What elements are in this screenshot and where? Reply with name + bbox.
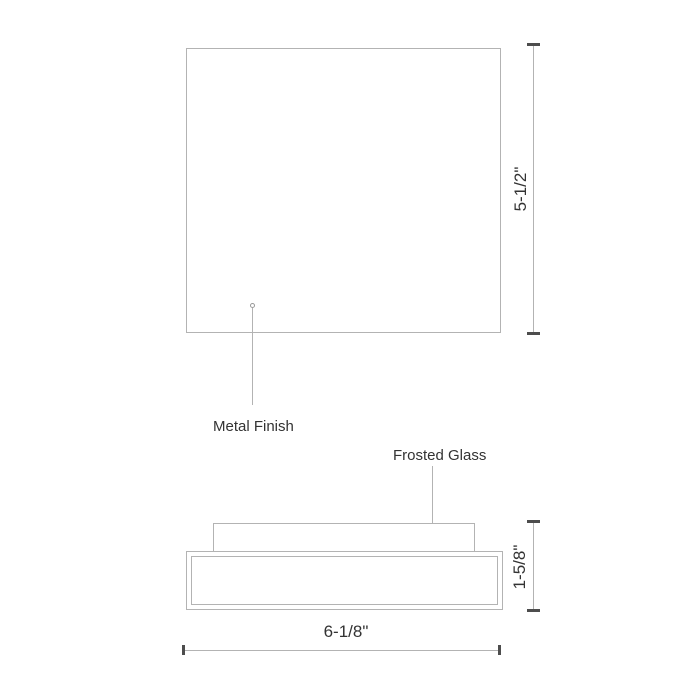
side-view-glass-outline <box>191 556 498 605</box>
width-dimension-line <box>184 650 500 651</box>
plan-height-dimension-line <box>533 44 534 334</box>
side-height-dimension-top-tick <box>527 520 540 523</box>
width-dimension-left-tick <box>182 645 185 655</box>
frosted-glass-label: Frosted Glass <box>393 448 486 464</box>
metal-finish-label: Metal Finish <box>213 419 294 435</box>
plan-height-dimension-top-tick <box>527 43 540 46</box>
side-height-dimension-bottom-tick <box>527 609 540 612</box>
side-height-dimension-label: 1-5/8" <box>511 532 529 602</box>
width-dimension-right-tick <box>498 645 501 655</box>
plan-height-dimension-label: 5-1/2" <box>512 154 530 224</box>
side-height-dimension-line <box>533 522 534 611</box>
plan-view-outline <box>186 48 501 333</box>
side-view-canopy-outline <box>213 523 475 552</box>
plan-height-dimension-bottom-tick <box>527 332 540 335</box>
fixture-dimension-drawing: 5-1/2" Metal Finish Frosted Glass 1-5/8"… <box>0 0 700 700</box>
width-dimension-label: 6-1/8" <box>306 623 386 641</box>
metal-finish-leader-line <box>252 308 253 405</box>
